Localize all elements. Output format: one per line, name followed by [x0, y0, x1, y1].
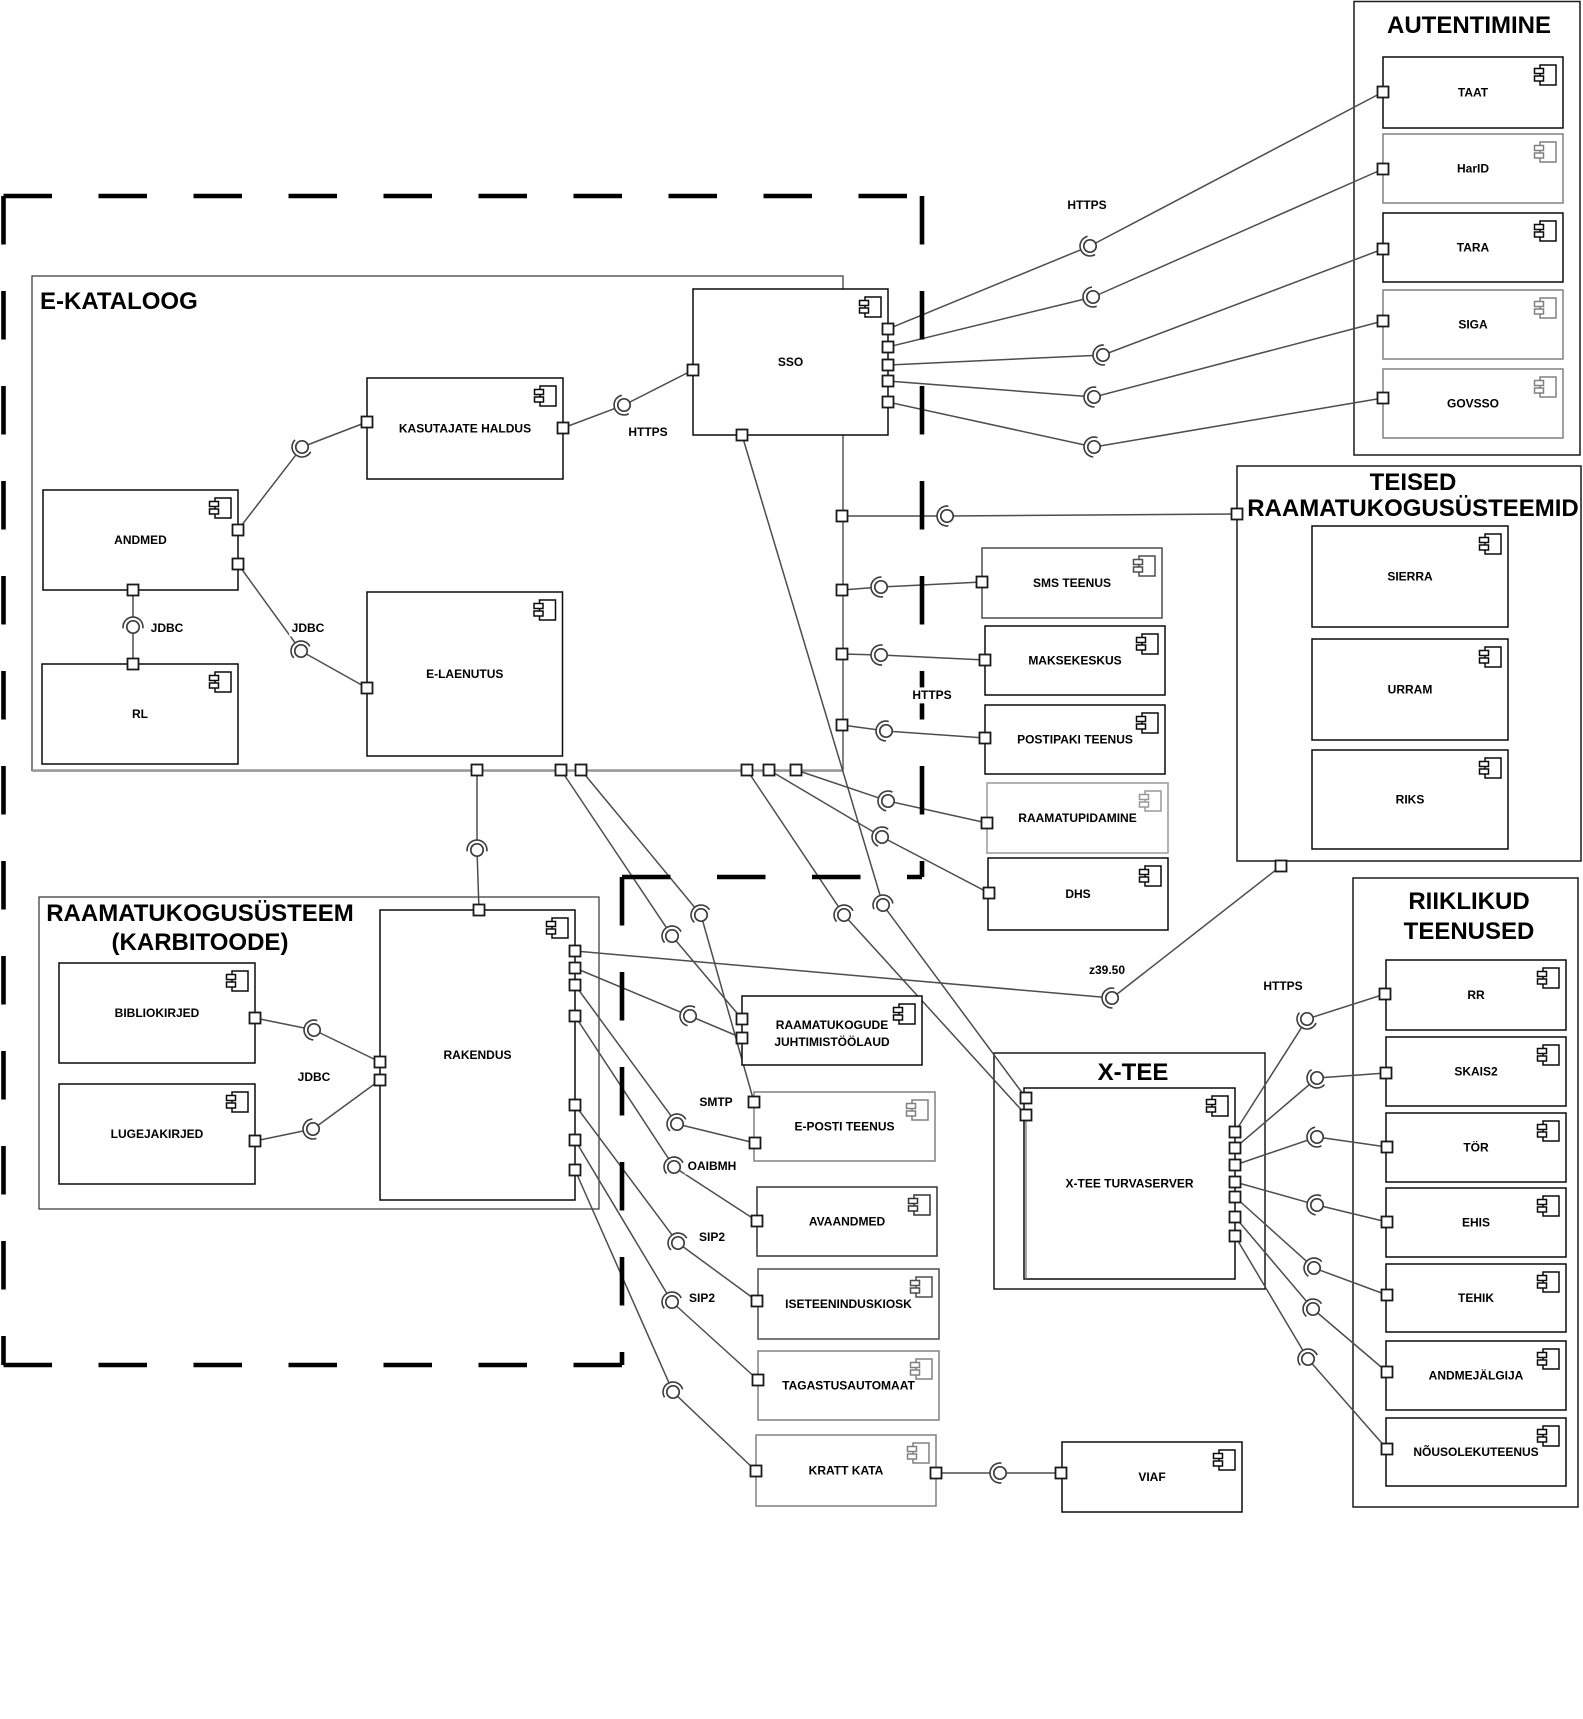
svg-text:SMTP: SMTP: [699, 1095, 732, 1109]
svg-text:HTTPS: HTTPS: [628, 425, 667, 439]
svg-text:KRATT KATA: KRATT KATA: [809, 1464, 884, 1478]
svg-text:ISETEENINDUSKIOSK: ISETEENINDUSKIOSK: [785, 1297, 912, 1311]
svg-text:RAKENDUS: RAKENDUS: [443, 1048, 511, 1062]
svg-text:SIGA: SIGA: [1458, 318, 1488, 332]
svg-text:TARA: TARA: [1457, 241, 1490, 255]
svg-text:RIKS: RIKS: [1396, 793, 1425, 807]
svg-text:RAAMATUKOGUDE: RAAMATUKOGUDE: [776, 1018, 888, 1032]
svg-text:SSO: SSO: [778, 355, 803, 369]
svg-text:SKAIS2: SKAIS2: [1454, 1065, 1498, 1079]
svg-text:HTTPS: HTTPS: [1067, 198, 1106, 212]
svg-text:E-KATALOOG: E-KATALOOG: [40, 288, 198, 315]
svg-text:ANDMEJÄLGIJA: ANDMEJÄLGIJA: [1429, 1368, 1524, 1383]
svg-text:JDBC: JDBC: [292, 621, 325, 635]
svg-text:AVAANDMED: AVAANDMED: [809, 1215, 886, 1229]
svg-text:RIIKLIKUD: RIIKLIKUD: [1408, 888, 1529, 915]
svg-text:EHIS: EHIS: [1462, 1216, 1490, 1230]
svg-text:TEISED: TEISED: [1370, 469, 1457, 496]
svg-text:JDBC: JDBC: [151, 621, 184, 635]
svg-text:X-TEE TURVASERVER: X-TEE TURVASERVER: [1065, 1177, 1193, 1191]
svg-text:KASUTAJATE HALDUS: KASUTAJATE HALDUS: [399, 422, 531, 436]
svg-text:RR: RR: [1467, 988, 1485, 1002]
svg-text:MAKSEKESKUS: MAKSEKESKUS: [1028, 654, 1121, 668]
svg-text:OAIBMH: OAIBMH: [688, 1159, 737, 1173]
svg-text:RAAMATUKOGUSÜSTEEMID: RAAMATUKOGUSÜSTEEMID: [1247, 495, 1579, 522]
svg-text:DHS: DHS: [1065, 887, 1090, 901]
svg-text:BIBLIOKIRJED: BIBLIOKIRJED: [115, 1006, 200, 1020]
svg-text:RAAMATUPIDAMINE: RAAMATUPIDAMINE: [1018, 811, 1136, 825]
svg-text:ANDMED: ANDMED: [114, 533, 167, 547]
svg-text:JDBC: JDBC: [298, 1070, 331, 1084]
svg-text:TAGASTUSAUTOMAAT: TAGASTUSAUTOMAAT: [782, 1379, 915, 1393]
svg-text:LUGEJAKIRJED: LUGEJAKIRJED: [111, 1127, 204, 1141]
svg-text:TÖR: TÖR: [1463, 1140, 1489, 1155]
svg-text:NÕUSOLEKUTEENUS: NÕUSOLEKUTEENUS: [1413, 1444, 1538, 1459]
svg-text:E-POSTI TEENUS: E-POSTI TEENUS: [794, 1120, 894, 1134]
svg-text:TEENUSED: TEENUSED: [1404, 918, 1535, 945]
svg-text:SIERRA: SIERRA: [1387, 570, 1433, 584]
svg-text:GOVSSO: GOVSSO: [1447, 397, 1499, 411]
svg-text:URRAM: URRAM: [1388, 683, 1433, 697]
svg-text:X-TEE: X-TEE: [1098, 1059, 1169, 1086]
svg-text:SMS TEENUS: SMS TEENUS: [1033, 576, 1111, 590]
svg-text:TAAT: TAAT: [1458, 86, 1489, 100]
svg-text:VIAF: VIAF: [1138, 1470, 1165, 1484]
svg-text:(KARBITOODE): (KARBITOODE): [112, 929, 289, 956]
svg-text:TEHIK: TEHIK: [1458, 1291, 1494, 1305]
svg-text:JUHTIMISTÖÖLAUD: JUHTIMISTÖÖLAUD: [774, 1034, 890, 1049]
svg-text:z39.50: z39.50: [1089, 963, 1125, 977]
svg-text:POSTIPAKI TEENUS: POSTIPAKI TEENUS: [1017, 733, 1133, 747]
svg-text:HarID: HarID: [1457, 162, 1489, 176]
svg-text:RAAMATUKOGUSÜSTEEM: RAAMATUKOGUSÜSTEEM: [46, 900, 354, 927]
svg-text:HTTPS: HTTPS: [912, 688, 951, 702]
svg-text:AUTENTIMINE: AUTENTIMINE: [1387, 12, 1551, 39]
svg-text:HTTPS: HTTPS: [1263, 979, 1302, 993]
svg-text:SIP2: SIP2: [689, 1291, 715, 1305]
svg-text:SIP2: SIP2: [699, 1230, 725, 1244]
svg-text:E-LAENUTUS: E-LAENUTUS: [426, 667, 503, 681]
svg-text:RL: RL: [132, 707, 148, 721]
